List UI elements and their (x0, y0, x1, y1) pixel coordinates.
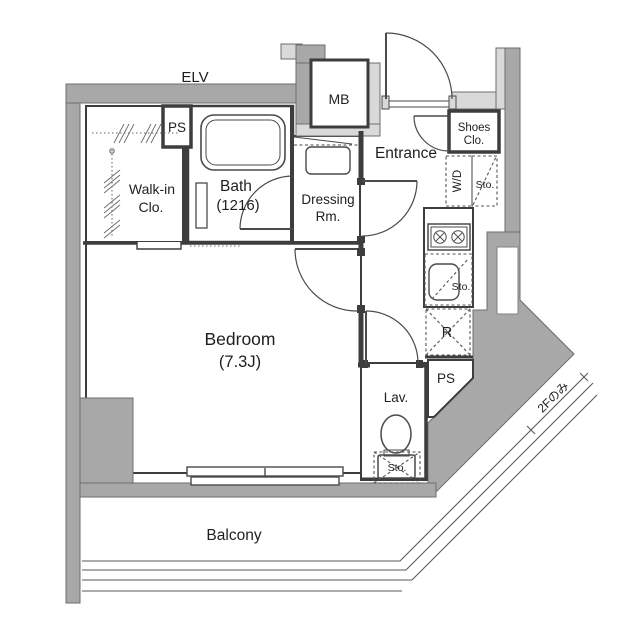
label-bedroom-1: Bedroom (204, 329, 275, 349)
label-ps-bottom: PS (437, 371, 455, 386)
label-dressing-1: Dressing (301, 192, 354, 207)
label-storage-hall: Sto. (476, 179, 495, 191)
label-ps-top: PS (168, 120, 186, 135)
floor-plan-svg: ELV PS Walk-in Clo. Bath (1216) Dressing… (0, 0, 640, 639)
east-window (497, 247, 518, 314)
jamb (416, 360, 423, 368)
wall-bedroom-step (80, 398, 133, 497)
walkin-doorway-sill (137, 242, 181, 249)
label-mb: MB (329, 91, 350, 107)
label-refrigerator: R (442, 325, 452, 341)
label-elevator: ELV (181, 69, 208, 86)
rooms (86, 106, 426, 480)
wall-top (66, 84, 308, 103)
label-bath-1: Bath (220, 178, 252, 195)
entrance-door (386, 33, 452, 99)
label-dressing-2: Rm. (316, 209, 341, 224)
wall-corridor-topright (452, 92, 498, 109)
label-entrance: Entrance (375, 145, 437, 162)
wall-left (66, 84, 80, 603)
label-balcony: Balcony (206, 527, 261, 544)
jamb (357, 305, 365, 313)
floor-plan: ELV PS Walk-in Clo. Bath (1216) Dressing… (0, 0, 640, 639)
label-washer-dryer: W/D (452, 170, 464, 192)
label-walkin-2: Clo. (139, 199, 164, 215)
jamb (357, 248, 365, 256)
label-bath-2: (1216) (216, 197, 259, 214)
label-bedroom-2: (7.3J) (219, 353, 261, 371)
label-shoes-2: Clo. (464, 135, 484, 147)
label-storage-lavatory: Sto. (388, 462, 407, 474)
jamb (357, 236, 365, 243)
dressing-door (362, 181, 417, 236)
lavatory-door (366, 311, 418, 363)
label-walkin-1: Walk-in (129, 181, 175, 197)
label-shoes-1: Shoes (458, 122, 491, 134)
wall-east (505, 48, 520, 232)
entrance-threshold (388, 101, 449, 107)
label-lavatory: Lav. (384, 390, 409, 405)
label-storage-kitchen: Sto. (452, 281, 471, 293)
wall-mb-left (296, 63, 311, 126)
balcony-sliding-door-inner (191, 477, 339, 485)
